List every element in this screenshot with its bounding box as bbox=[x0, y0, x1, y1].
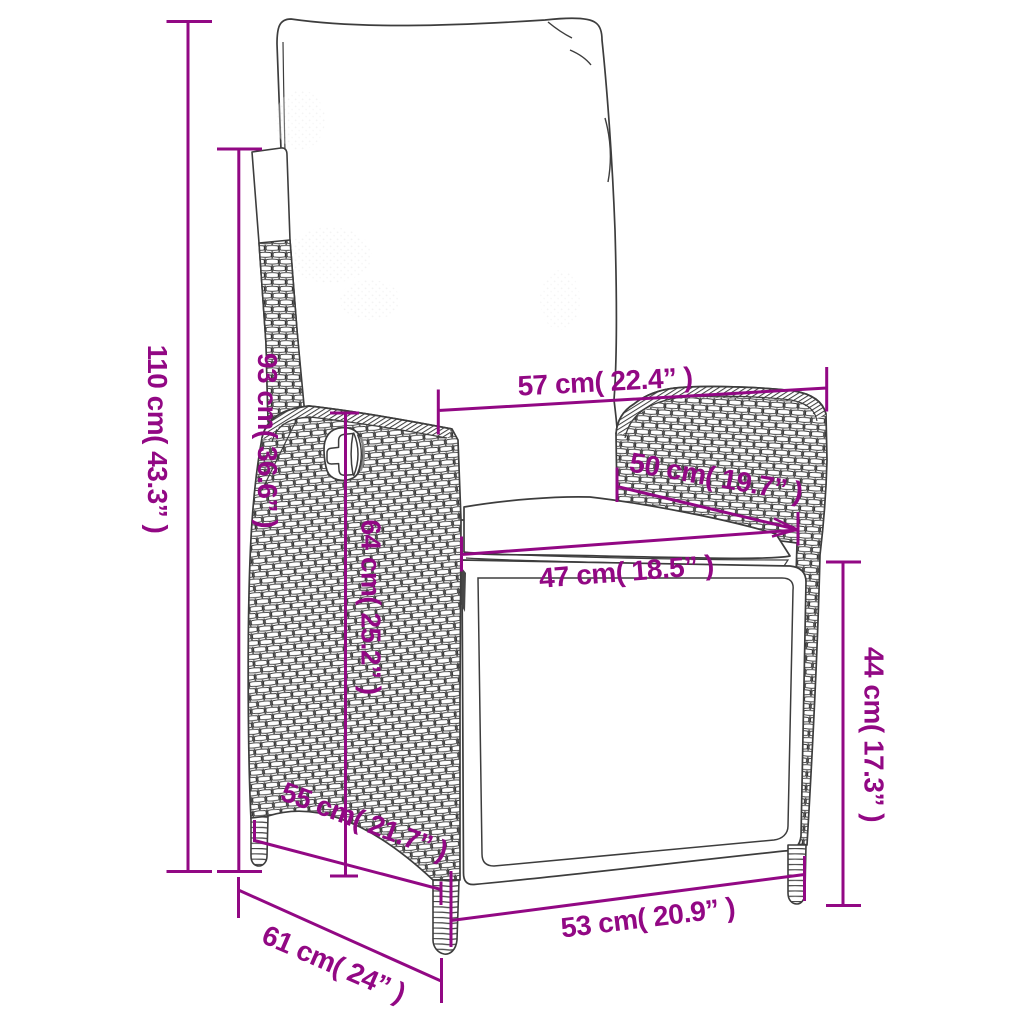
svg-text:93 cm( 36.6” ): 93 cm( 36.6” ) bbox=[252, 353, 283, 528]
svg-text:110 cm( 43.3” ): 110 cm( 43.3” ) bbox=[142, 345, 173, 534]
svg-text:44 cm( 17.3” ): 44 cm( 17.3” ) bbox=[859, 647, 890, 822]
svg-text:64 cm( 25.2” ): 64 cm( 25.2” ) bbox=[356, 519, 387, 694]
